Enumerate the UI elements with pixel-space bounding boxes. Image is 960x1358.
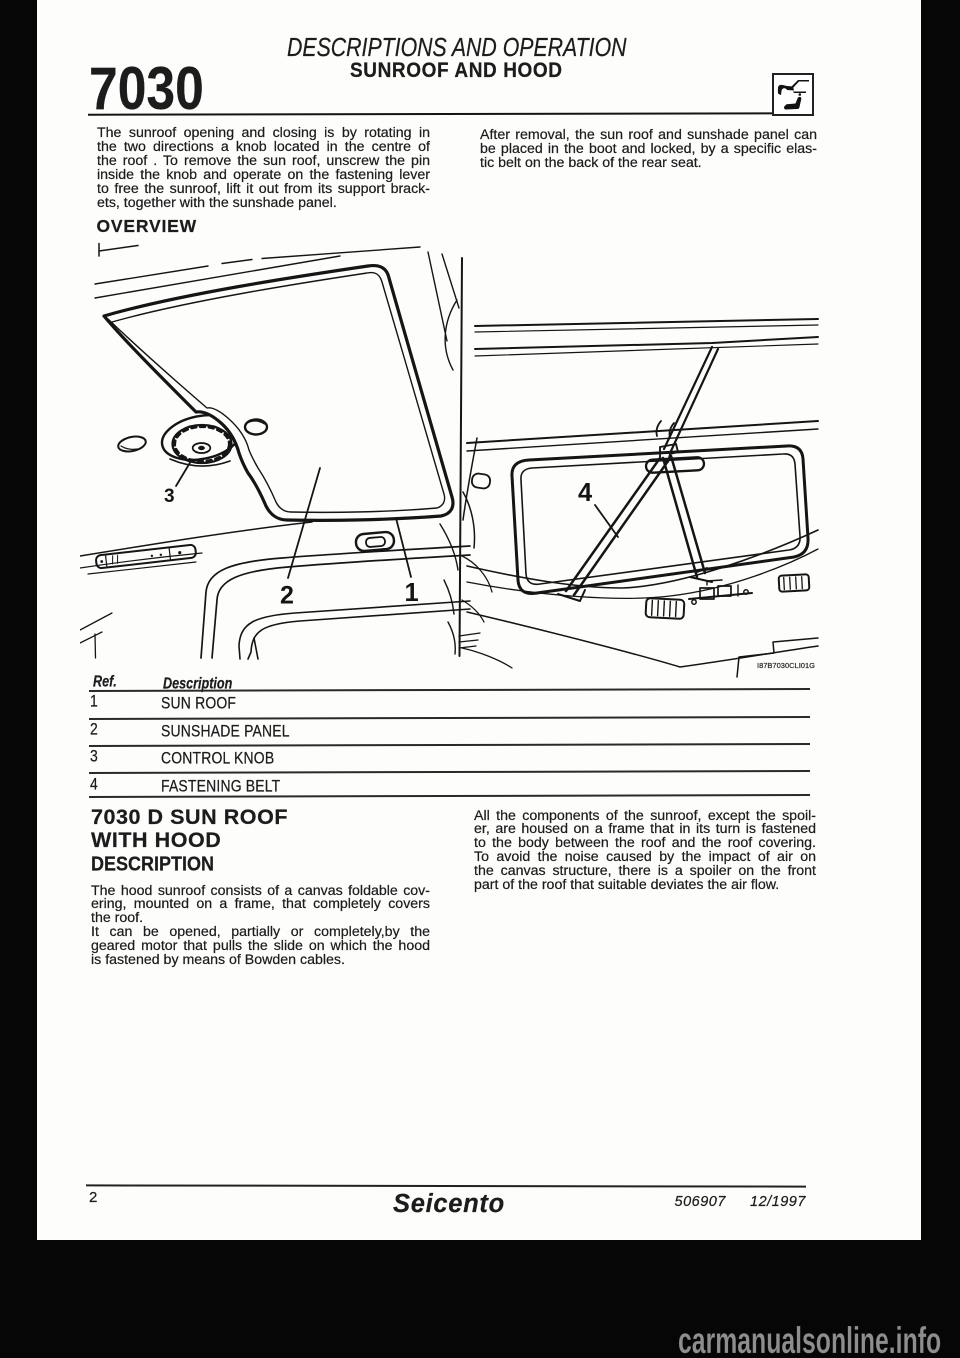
svg-text:2: 2 (280, 582, 294, 610)
svg-text:3: 3 (164, 486, 175, 507)
svg-text:1: 1 (405, 579, 419, 607)
svg-text:4: 4 (578, 479, 593, 507)
